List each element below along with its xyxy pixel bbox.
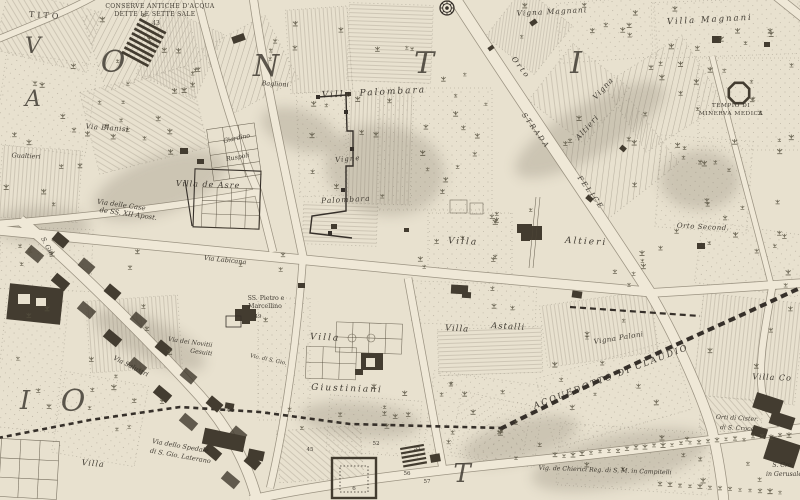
map-label: CONSERVE ANTICHE D'ACQUA: [105, 3, 215, 10]
district-letter: O: [61, 384, 86, 419]
map-label: 6: [352, 486, 356, 492]
map-label: Villa: [322, 89, 353, 100]
map-label: 52: [373, 441, 380, 447]
map-label: Villa: [448, 236, 479, 248]
map-label: S. Cro: [772, 462, 792, 469]
district-letter: T: [453, 459, 472, 489]
district-letter: A: [23, 87, 41, 112]
map-label: SS. Pietro e: [248, 295, 285, 302]
district-letter: O: [101, 45, 126, 80]
district-letter: T: [414, 46, 436, 81]
map-label: TEMPIO DI: [712, 103, 750, 109]
map-label: 55: [414, 446, 421, 452]
map-label: 49: [255, 314, 262, 320]
map-label: 45: [307, 447, 314, 453]
map-label: Villa: [445, 323, 470, 334]
district-letter: I: [19, 386, 31, 416]
map-label: MINERVA MEDICA: [699, 111, 764, 117]
road-rosette: [440, 1, 454, 15]
map-label: Gualtieri: [11, 151, 40, 161]
map-label: Marcellino: [248, 303, 282, 310]
map-label: Villa: [310, 332, 341, 344]
map-label: 56: [404, 471, 411, 477]
map-label: Villa Co: [752, 372, 792, 382]
map-canvas[interactable]: ONTIOITVATITOCONSERVE ANTICHE D'ACQUADET…: [0, 0, 800, 500]
district-letter: I: [569, 46, 583, 81]
map-label: Astalli: [490, 321, 526, 333]
map-label: 57: [424, 479, 431, 485]
district-letter: V: [25, 34, 43, 59]
map-viewport: ONTIOITVATITOCONSERVE ANTICHE D'ACQUADET…: [0, 0, 800, 500]
map-label: in Gerusale: [766, 471, 800, 478]
map-label: 44: [227, 408, 234, 414]
map-label: Baglioni: [260, 79, 289, 88]
map-label: 43: [152, 20, 160, 27]
map-label: DETTE LE SETTE SALE: [114, 11, 195, 18]
